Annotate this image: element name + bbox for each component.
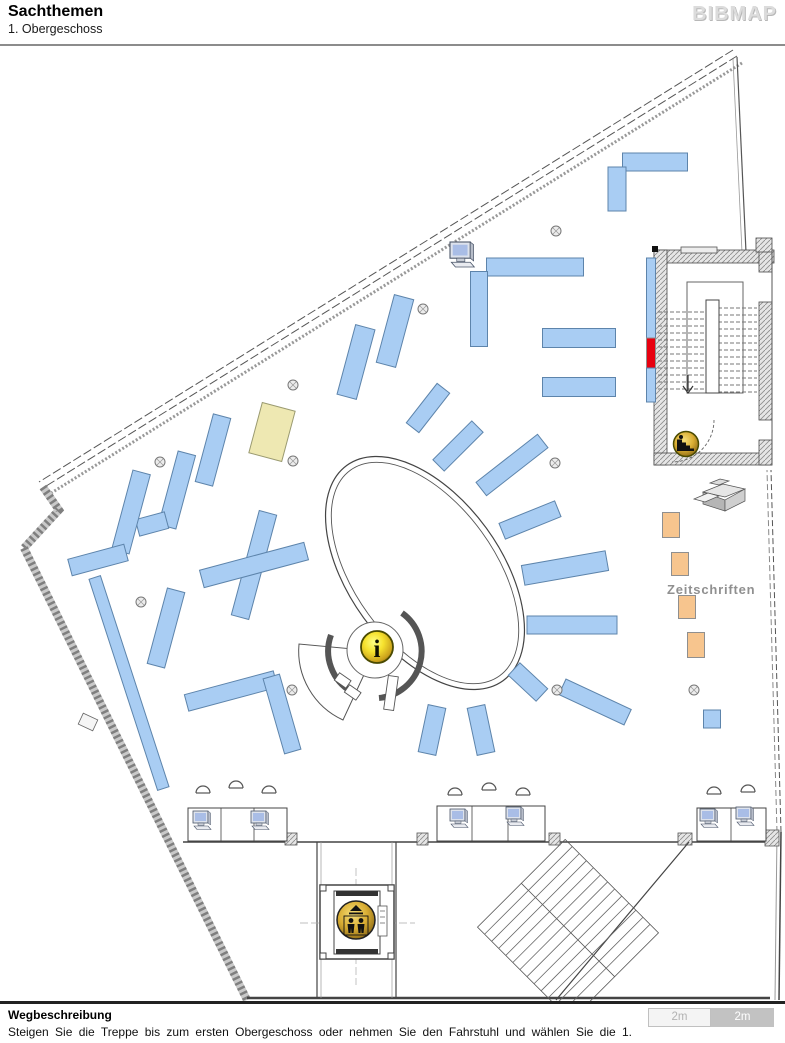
- bookshelf: [418, 705, 446, 756]
- notice-board: [681, 247, 717, 253]
- chair: [707, 787, 721, 794]
- bookshelf: [476, 434, 548, 495]
- chair: [516, 788, 530, 795]
- chair: [741, 785, 755, 792]
- reading-shelf: [249, 402, 295, 461]
- journal-rack: [688, 633, 705, 658]
- chair: [229, 781, 243, 788]
- computer-icon: [736, 807, 754, 826]
- computer-icon: [251, 811, 269, 830]
- bookshelf: [376, 295, 413, 368]
- bookshelf: [623, 153, 688, 171]
- bookshelf: [543, 329, 616, 348]
- bookshelf: [508, 663, 547, 701]
- stair-direction-arrow: [683, 375, 693, 393]
- bookshelf: [487, 258, 584, 276]
- zeitschriften-label: Zeitschriften: [667, 582, 755, 597]
- column: [287, 685, 297, 695]
- bookshelf: [433, 421, 483, 471]
- lower-staircase: [477, 839, 658, 1020]
- journal-rack: [679, 596, 696, 619]
- bookshelf: [543, 378, 616, 397]
- page-footer: Wegbeschreibung Steigen Sie die Treppe b…: [0, 1001, 785, 1043]
- stairs-icon: [674, 432, 699, 457]
- column: [418, 304, 428, 314]
- bookshelf: [521, 551, 608, 585]
- bookshelf: [184, 671, 277, 711]
- bookshelf: [135, 512, 168, 536]
- chair: [448, 788, 462, 795]
- floor-subtitle: 1. Obergeschoss: [8, 22, 785, 36]
- stairwell: [652, 238, 774, 465]
- column: [136, 597, 146, 607]
- computer-icon: [700, 809, 718, 828]
- bookshelf: [147, 588, 185, 668]
- bookshelf: [337, 325, 375, 400]
- page-title: Sachthemen: [8, 3, 785, 21]
- info-desk: [299, 613, 422, 720]
- bookshelf: [471, 272, 488, 347]
- bookshelf: [467, 705, 495, 756]
- column: [551, 226, 561, 236]
- column: [155, 457, 165, 467]
- computer-icon: [506, 807, 524, 826]
- bookshelf: [608, 167, 626, 211]
- copier-icon: [694, 479, 745, 511]
- floorplan-map: i Zeitschriften: [0, 0, 785, 1043]
- bookshelf: [406, 383, 449, 432]
- column: [550, 458, 560, 468]
- column: [552, 685, 562, 695]
- bibmap-logo: BIBMAP: [692, 3, 777, 26]
- elevator-icon: [337, 901, 375, 939]
- bookshelf: [68, 544, 128, 575]
- interior-walls: [183, 830, 779, 1000]
- svg-text:i: i: [374, 636, 381, 663]
- chair: [196, 786, 210, 793]
- bookshelf: [647, 258, 656, 338]
- bookshelf: [527, 616, 617, 634]
- column: [288, 456, 298, 466]
- computer-icon: [450, 242, 474, 267]
- info-icon: i: [361, 631, 393, 663]
- journal-rack: [672, 553, 689, 576]
- page-header: Sachthemen 1. Obergeschoss BIBMAP: [0, 0, 785, 46]
- bookshelf: [499, 501, 561, 539]
- column: [689, 685, 699, 695]
- scale-segment-dark: 2m: [711, 1008, 774, 1027]
- bookshelf: [112, 470, 151, 554]
- bookshelf: [704, 710, 721, 728]
- bookshelf: [647, 368, 656, 402]
- bookshelf: [195, 414, 231, 486]
- computer-icon: [193, 811, 211, 830]
- chair: [262, 786, 276, 793]
- directions-text: Steigen Sie die Treppe bis zum ersten Ob…: [8, 1025, 785, 1039]
- bookshelf: [559, 679, 631, 725]
- computer-icon: [450, 809, 468, 828]
- journal-rack: [663, 513, 680, 538]
- highlighted-shelf: [647, 338, 656, 368]
- column: [288, 380, 298, 390]
- scale-segment-light: 2m: [648, 1008, 711, 1027]
- chair: [482, 783, 496, 790]
- map-scale-bar: 2m 2m: [648, 1008, 774, 1027]
